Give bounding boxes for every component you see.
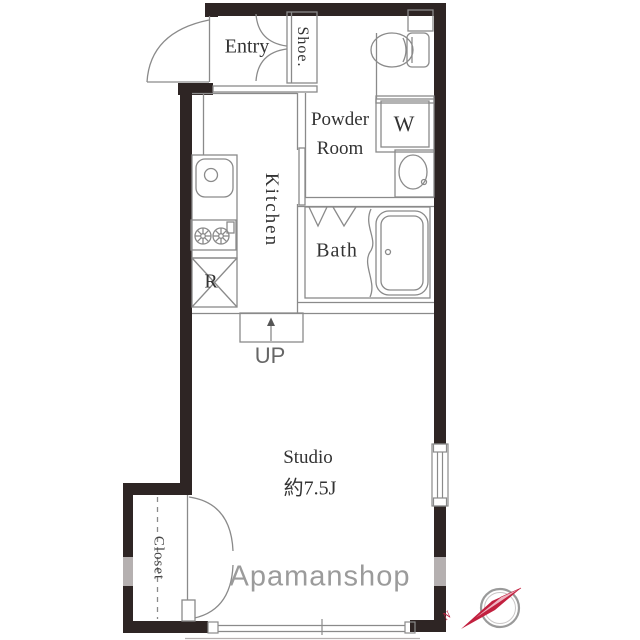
studio-label: Studio (283, 447, 333, 469)
kitchen-label: Kitchen (260, 173, 282, 247)
shoe-closet-label: Shoe. (293, 27, 311, 68)
studio-size-label: 約7.5J (284, 472, 337, 501)
powder-room-label-line2: Room (311, 134, 369, 163)
floor-plan-drawing (0, 0, 640, 640)
up-arrow-icon (267, 318, 275, 342)
bottom-sliding-window (185, 619, 420, 639)
refrigerator-label: R (204, 271, 217, 294)
step-up-label: UP (255, 343, 286, 369)
floor-plan-page: { "rooms": { "entry": {"label": "Entry"}… (0, 0, 640, 640)
toilet-icon (371, 33, 429, 67)
entry-label: Entry (225, 36, 269, 59)
burner-left (195, 228, 211, 244)
powder-room-label: Powder Room (311, 105, 369, 163)
compass-icon (461, 588, 521, 629)
washer-label: W (394, 111, 415, 137)
powder-sink-icon (395, 150, 434, 197)
right-wall-window (432, 444, 448, 506)
fixtures (191, 33, 434, 341)
bathtub-icon (376, 211, 428, 295)
powder-room-label-line1: Powder (311, 105, 369, 134)
stove-icon (191, 220, 236, 250)
exterior-walls (123, 3, 446, 633)
closet-label: Closet (150, 536, 167, 580)
burner-right (213, 228, 229, 244)
watermark-text: Apamanshop (230, 561, 411, 594)
bath-label: Bath (316, 240, 358, 263)
kitchen-sink-icon (196, 159, 233, 197)
